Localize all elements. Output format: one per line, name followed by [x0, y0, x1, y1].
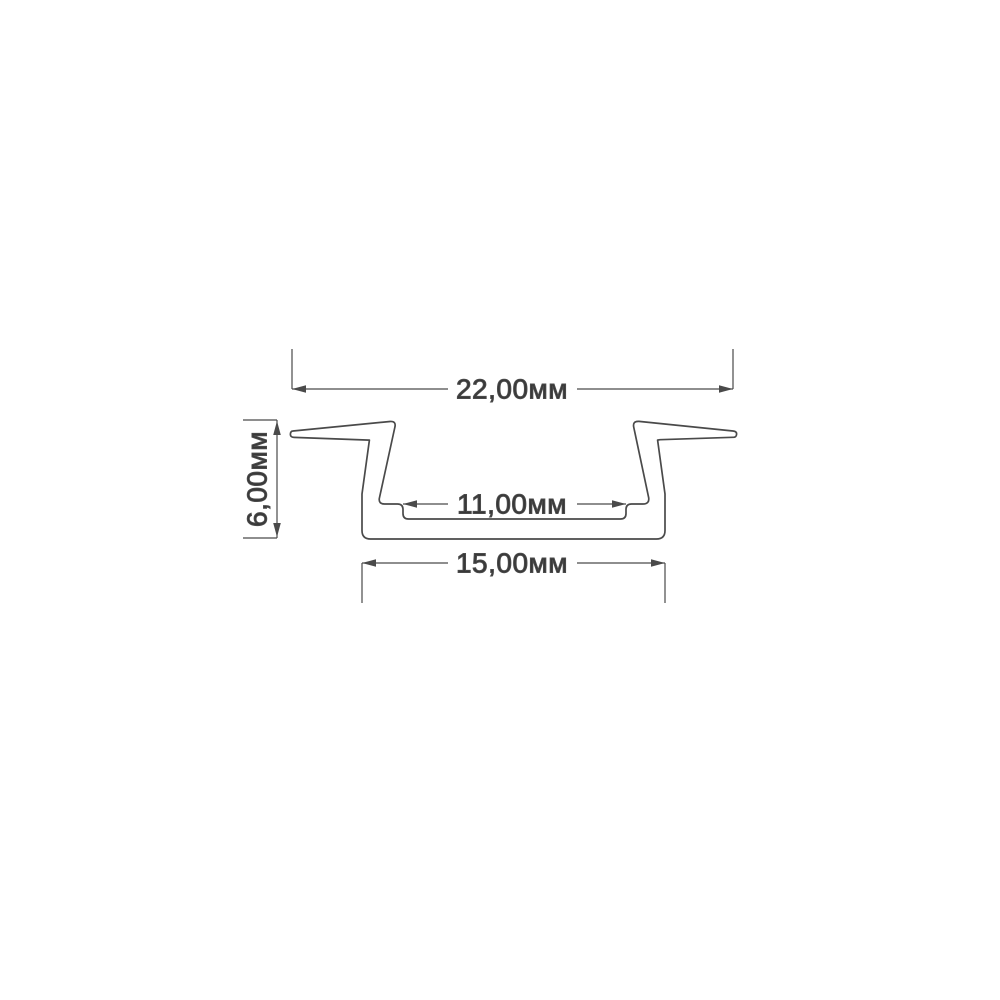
arrow-left-icon [362, 559, 376, 567]
arrow-right-icon [651, 559, 665, 567]
dim-inner-width: 11,00мм [403, 489, 626, 520]
arrow-right-icon [719, 385, 733, 393]
dim-base-width-label: 15,00мм [456, 548, 568, 579]
arrow-left-icon [403, 500, 417, 508]
arrow-right-icon [612, 500, 626, 508]
profile-outline [290, 421, 736, 539]
dim-overall-width: 22,00мм [292, 349, 733, 405]
profile-technical-drawing: 22,00мм 6,00мм 11,00мм 15,00мм [0, 0, 1000, 1000]
dim-base-width: 15,00мм [362, 548, 665, 604]
arrow-down-icon [273, 523, 281, 537]
arrow-left-icon [292, 385, 306, 393]
dim-overall-width-label: 22,00мм [456, 374, 568, 405]
dim-height: 6,00мм [242, 420, 281, 538]
dim-inner-width-label: 11,00мм [457, 489, 567, 520]
drawing-canvas: 22,00мм 6,00мм 11,00мм 15,00мм [0, 0, 1000, 1000]
arrow-up-icon [273, 421, 281, 435]
dim-height-label: 6,00мм [242, 431, 273, 527]
